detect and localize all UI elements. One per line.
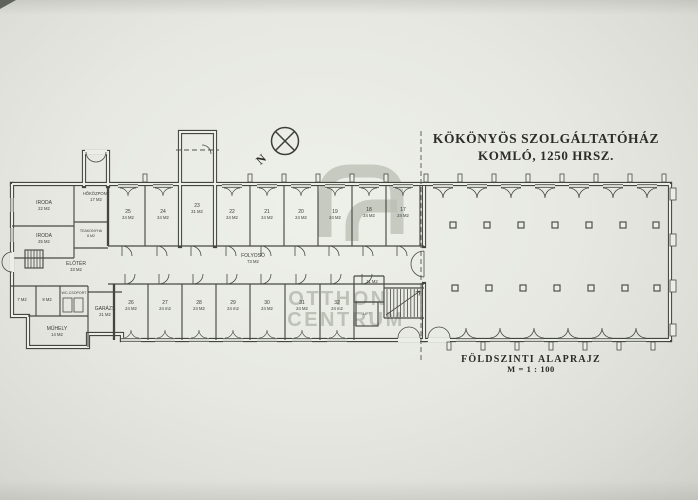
room-area: 7 M2 [17, 297, 27, 302]
room-area: 24 M2 [397, 213, 409, 218]
room-label: HŐKÖZPONT [83, 191, 110, 196]
room-area: 24 M2 [329, 215, 341, 220]
plan-title-line1: KÖKÖNYÖS SZOLGÁLTATÓHÁZ [433, 131, 659, 146]
lift-label: LIFT [363, 312, 371, 316]
room-area: 31 M2 [191, 209, 203, 214]
room-area: 14 M2 [51, 332, 63, 337]
north-label: N [253, 151, 269, 168]
room-area: 24 M2 [261, 215, 273, 220]
room-label: ELŐTÉR [66, 260, 86, 267]
room-area: 24 m2 [159, 306, 171, 311]
room-area: 24 M2 [363, 213, 375, 218]
photographed-floorplan-page: OTTHON CENTRUM N [0, 0, 698, 500]
room-area: 24 M2 [125, 306, 137, 311]
room-area: 24 m2 [227, 306, 239, 311]
north-arrow-icon: N [253, 128, 298, 168]
room-area: 24 M2 [261, 306, 273, 311]
room-area: 24 M2 [193, 306, 205, 311]
plan-scale: M = 1 : 100 [507, 364, 555, 374]
staircase-left [25, 250, 43, 268]
room-area: 24 M2 [157, 215, 169, 220]
room-area: 21 M2 [99, 312, 111, 317]
room-area: 17 M2 [90, 197, 102, 202]
room-area: 24 M2 [296, 306, 308, 311]
room-area: 8 M2 [42, 297, 52, 302]
room-area: 24 M2 [122, 215, 134, 220]
corridor-label: FOLYOSÓ [241, 252, 265, 259]
room-area: 24 M2 [226, 215, 238, 220]
floor-plan-drawing: OTTHON CENTRUM N [0, 0, 698, 500]
small-room-area: 11 M2 [366, 279, 378, 284]
pilaster-ticks [143, 174, 676, 350]
room-area: 24 m2 [331, 306, 343, 311]
room-area: 33 M2 [70, 267, 82, 272]
hall-columns [450, 222, 660, 291]
room-area: 22 M2 [38, 206, 50, 211]
corridor-area: 73 M2 [247, 259, 259, 264]
room-area: 24 M2 [295, 215, 307, 220]
room-area: 8 M2 [87, 234, 95, 238]
room-label: TEAKONYHA [80, 229, 103, 233]
room-label: WC-CSOPORT [62, 291, 88, 295]
room-area: 25 M2 [38, 239, 50, 244]
room-label: GARÁZS [95, 305, 116, 312]
plan-title-line2: KOMLÓ, 1250 HRSZ. [478, 148, 614, 163]
room-label: MŰHELY [47, 325, 68, 332]
